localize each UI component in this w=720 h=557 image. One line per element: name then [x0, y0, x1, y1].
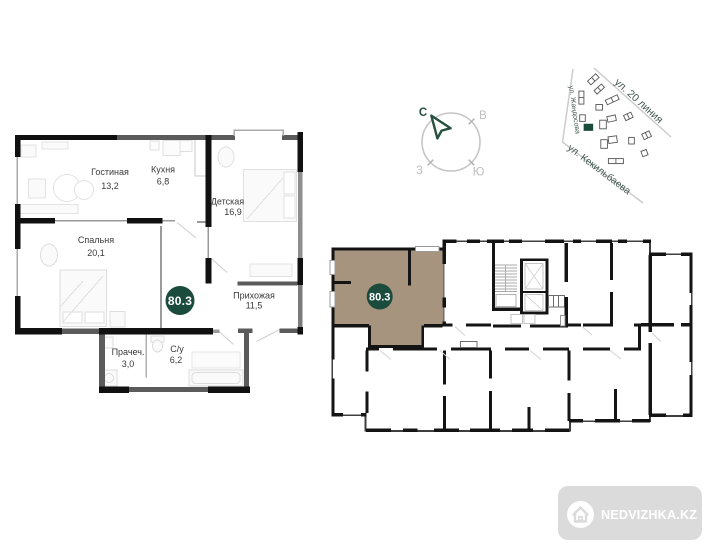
svg-text:Прихожая: Прихожая [233, 291, 275, 301]
svg-text:3,0: 3,0 [122, 359, 135, 369]
svg-text:С: С [419, 107, 427, 119]
svg-text:С/у: С/у [170, 344, 184, 354]
svg-text:В: В [479, 110, 487, 122]
svg-text:Прачеч.: Прачеч. [112, 347, 145, 357]
svg-text:16,9: 16,9 [224, 207, 242, 217]
svg-text:11,5: 11,5 [246, 300, 263, 310]
svg-text:20,1: 20,1 [87, 248, 105, 258]
svg-text:6,2: 6,2 [170, 355, 183, 365]
svg-text:З: З [416, 165, 423, 177]
svg-text:80.3: 80.3 [369, 291, 390, 303]
svg-text:Ю: Ю [473, 167, 485, 179]
svg-text:Детская: Детская [211, 197, 244, 207]
svg-text:Спальня: Спальня [78, 235, 114, 245]
svg-text:80.3: 80.3 [168, 294, 192, 308]
svg-text:NEDVIZHKA.KZ: NEDVIZHKA.KZ [601, 508, 697, 522]
svg-text:13,2: 13,2 [101, 181, 119, 191]
svg-text:Гостиная: Гостиная [91, 167, 129, 177]
svg-text:Кухня: Кухня [151, 165, 175, 175]
svg-text:6,8: 6,8 [157, 176, 170, 186]
